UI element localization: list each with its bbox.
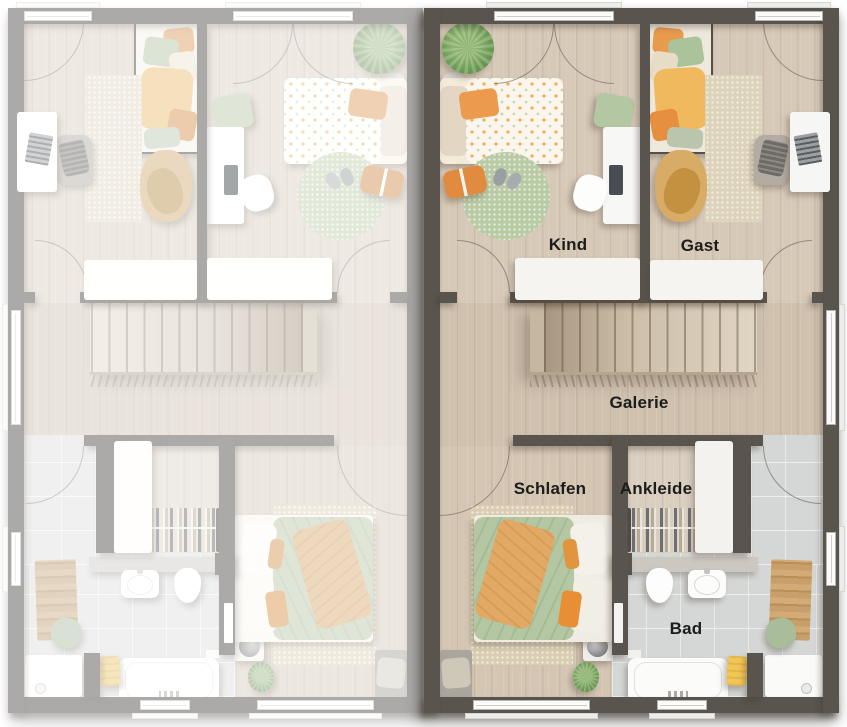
sill-kind-top [225, 2, 361, 8]
bed-gast-pillow-sage [143, 126, 181, 149]
sill-schlafen-bottom [465, 713, 598, 719]
sill-gast-top [747, 2, 831, 8]
shower-drain [801, 683, 812, 694]
sill-bad-bottom [649, 713, 715, 719]
rug-gast [85, 75, 142, 222]
window-kind-top [494, 11, 614, 21]
wall-kind-gast [640, 24, 650, 303]
window-kind-top [233, 11, 353, 21]
sink [688, 570, 726, 598]
sink [121, 570, 159, 598]
room-label-schlafen: Schlafen [514, 479, 586, 499]
stair-railing-hatch [90, 375, 317, 387]
sill-bad-bottom [132, 713, 198, 719]
wall-bedrooms-galerie-3 [812, 292, 823, 303]
sideboard-kind [515, 258, 640, 300]
window-bad-side [11, 532, 21, 586]
sill-galerie-side [839, 304, 845, 431]
stair-stringer [303, 303, 317, 372]
shower-tray [25, 655, 82, 697]
laptop-gast [794, 132, 823, 166]
armchair-cushion [757, 139, 790, 178]
blanket-fold [659, 164, 706, 218]
sideboard-gast [84, 260, 197, 300]
wardrobe-cabinet [114, 441, 152, 553]
bench-towel [441, 657, 472, 689]
wall-shower-stub [84, 653, 100, 697]
wall-bedrooms-galerie-3 [24, 292, 35, 303]
bench-schlafen [375, 650, 407, 698]
bed-gast [134, 22, 200, 154]
wall-bedrooms-galerie-1 [390, 292, 407, 303]
window-gast-top [24, 11, 92, 21]
sill-schlafen-bottom [249, 713, 382, 719]
bed-schlafen [234, 515, 373, 642]
blanket-pile [140, 150, 192, 222]
stair-treads [544, 303, 757, 372]
laptop-gast [25, 132, 54, 166]
room-label-kind: Kind [549, 235, 588, 255]
room-label-galerie: Galerie [609, 393, 668, 413]
wall-party [407, 8, 423, 713]
room-label-bad: Bad [670, 619, 703, 639]
monitor-kind [609, 165, 623, 195]
shower-drain [35, 683, 46, 694]
floorplan-image: Kind Gast Galerie Schlafen Ankleide Bad [0, 0, 847, 727]
bed-kind [284, 78, 407, 164]
stair-treads [90, 303, 303, 372]
bed-schlafen [474, 515, 613, 642]
desk-kind [205, 127, 244, 224]
window-galerie-side [826, 310, 836, 425]
blanket-fold [142, 164, 189, 218]
floorplan: Kind Gast Galerie Schlafen Ankleide Bad [8, 8, 839, 713]
sideboard-kind [207, 258, 332, 300]
wall-bedrooms-galerie-1 [440, 292, 457, 303]
staircase [530, 303, 757, 372]
wall-shower-stub [747, 653, 763, 697]
wall-ankleide-bad [96, 435, 114, 553]
window-bad-side [826, 532, 836, 586]
wall-ankleide-bad [733, 435, 751, 553]
sill-bad-side [2, 526, 8, 592]
sideboard-gast [650, 260, 763, 300]
unit-right: Kind Gast Galerie Schlafen Ankleide Bad [424, 8, 839, 713]
sill-kind-top [486, 2, 622, 8]
sink-basin [127, 575, 153, 595]
bed-gast [647, 22, 713, 154]
bench-towel [376, 657, 407, 689]
towel-yellow [726, 655, 748, 686]
desk-gast [17, 112, 57, 192]
room-label-gast: Gast [681, 236, 720, 256]
shower-tray [765, 655, 822, 697]
blanket-pile [655, 150, 707, 222]
window-schlafen-bottom [473, 700, 590, 710]
tub-side-cabinet [206, 650, 219, 658]
window-bad-bottom [657, 700, 707, 710]
plant-schlafen [573, 662, 599, 692]
plant-kind [442, 22, 494, 74]
unit-left [8, 8, 423, 713]
wardrobe-cabinet [695, 441, 733, 553]
bed-kind-orange-pillow [458, 87, 500, 120]
rug-gast [705, 75, 762, 222]
bad-door-leaf [224, 603, 233, 643]
bad-door-leaf [614, 603, 623, 643]
window-schlafen-bottom [257, 700, 374, 710]
sink-faucet [137, 568, 143, 574]
bed-kind-orange-pillow [347, 87, 389, 120]
armchair-cushion [58, 139, 91, 178]
wall-party [424, 8, 440, 713]
stair-railing-hatch [530, 375, 757, 387]
bed-gast-pillow-sage [666, 126, 704, 149]
armchair-gast [56, 135, 92, 185]
monitor-kind [224, 165, 238, 195]
armchair-gast [755, 135, 791, 185]
stair-stringer [530, 303, 544, 372]
window-galerie-side [11, 310, 21, 425]
bench-schlafen [440, 650, 472, 698]
staircase [90, 303, 317, 372]
plant-schlafen [248, 662, 274, 692]
sill-gast-top [16, 2, 100, 8]
sill-bad-side [839, 526, 845, 592]
wall-kind-gast [197, 24, 207, 303]
sink-faucet [704, 568, 710, 574]
towel-yellow [99, 655, 121, 686]
sink-basin [694, 575, 720, 595]
desk-kind [603, 127, 642, 224]
tub-side-cabinet [628, 650, 641, 658]
plant-kind [353, 22, 405, 74]
window-gast-top [755, 11, 823, 21]
window-bad-bottom [140, 700, 190, 710]
bed-kind [440, 78, 563, 164]
sill-galerie-side [2, 304, 8, 431]
room-label-ankleide: Ankleide [620, 479, 692, 499]
desk-gast [790, 112, 830, 192]
